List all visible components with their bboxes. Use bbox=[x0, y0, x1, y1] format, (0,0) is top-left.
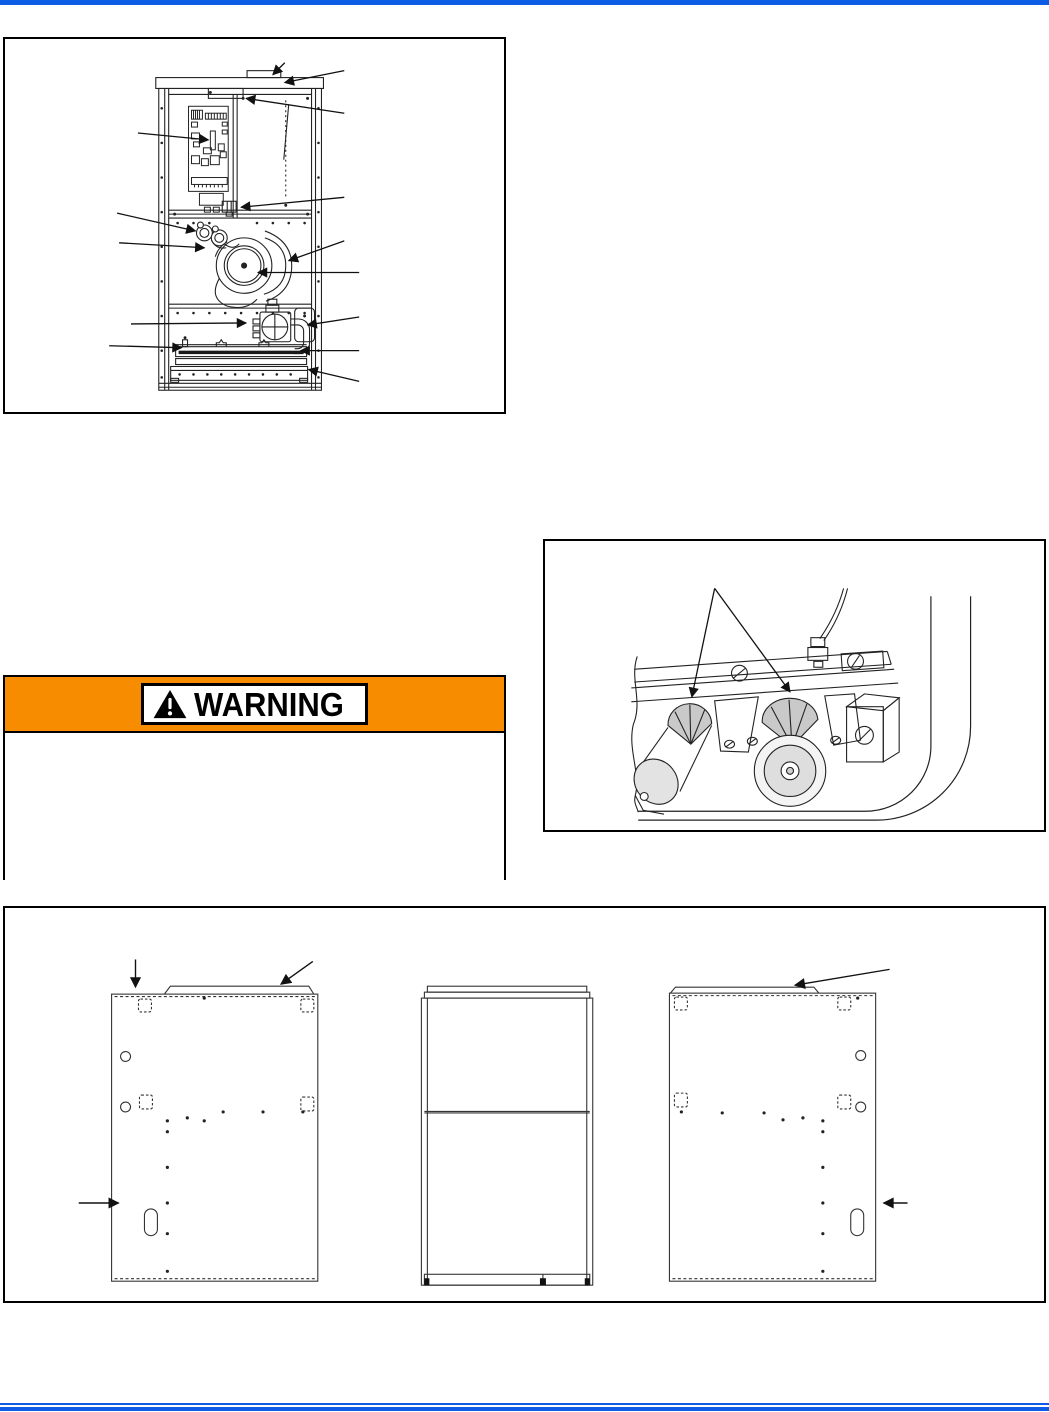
warning-label: WARNING bbox=[141, 683, 369, 725]
mounting-block bbox=[847, 694, 900, 762]
header-rule bbox=[0, 0, 1049, 5]
right-side-panel bbox=[669, 987, 875, 1281]
gas-valve bbox=[253, 299, 291, 342]
footer-rule-thick bbox=[0, 1407, 1049, 1411]
left-side-panel bbox=[112, 986, 318, 1281]
furnace-components-diagram bbox=[5, 39, 504, 412]
pressure-switches bbox=[196, 222, 239, 248]
warning-text: WARNING bbox=[194, 688, 344, 721]
figure-cabinet-panels bbox=[3, 906, 1046, 1303]
screw-dots bbox=[160, 91, 319, 379]
control-board bbox=[189, 106, 229, 212]
warning-triangle-icon bbox=[153, 689, 187, 719]
burner-tubes bbox=[625, 694, 860, 814]
front-panel bbox=[421, 986, 592, 1285]
burner-assembly bbox=[176, 336, 307, 364]
burner-detail-diagram bbox=[545, 541, 1044, 830]
condensate-tray bbox=[171, 366, 308, 382]
figure-furnace-components bbox=[3, 37, 506, 414]
vent-elbow bbox=[264, 231, 292, 301]
furnace-cabinet bbox=[156, 71, 324, 391]
manual-page: WARNING bbox=[0, 0, 1049, 1412]
warning-box: WARNING bbox=[3, 675, 506, 880]
figure-burner-detail bbox=[543, 539, 1046, 832]
warning-body bbox=[5, 733, 504, 880]
cabinet-panels-diagram bbox=[5, 908, 1044, 1301]
warning-banner: WARNING bbox=[5, 677, 504, 733]
footer-rule-thin bbox=[0, 1403, 1049, 1405]
